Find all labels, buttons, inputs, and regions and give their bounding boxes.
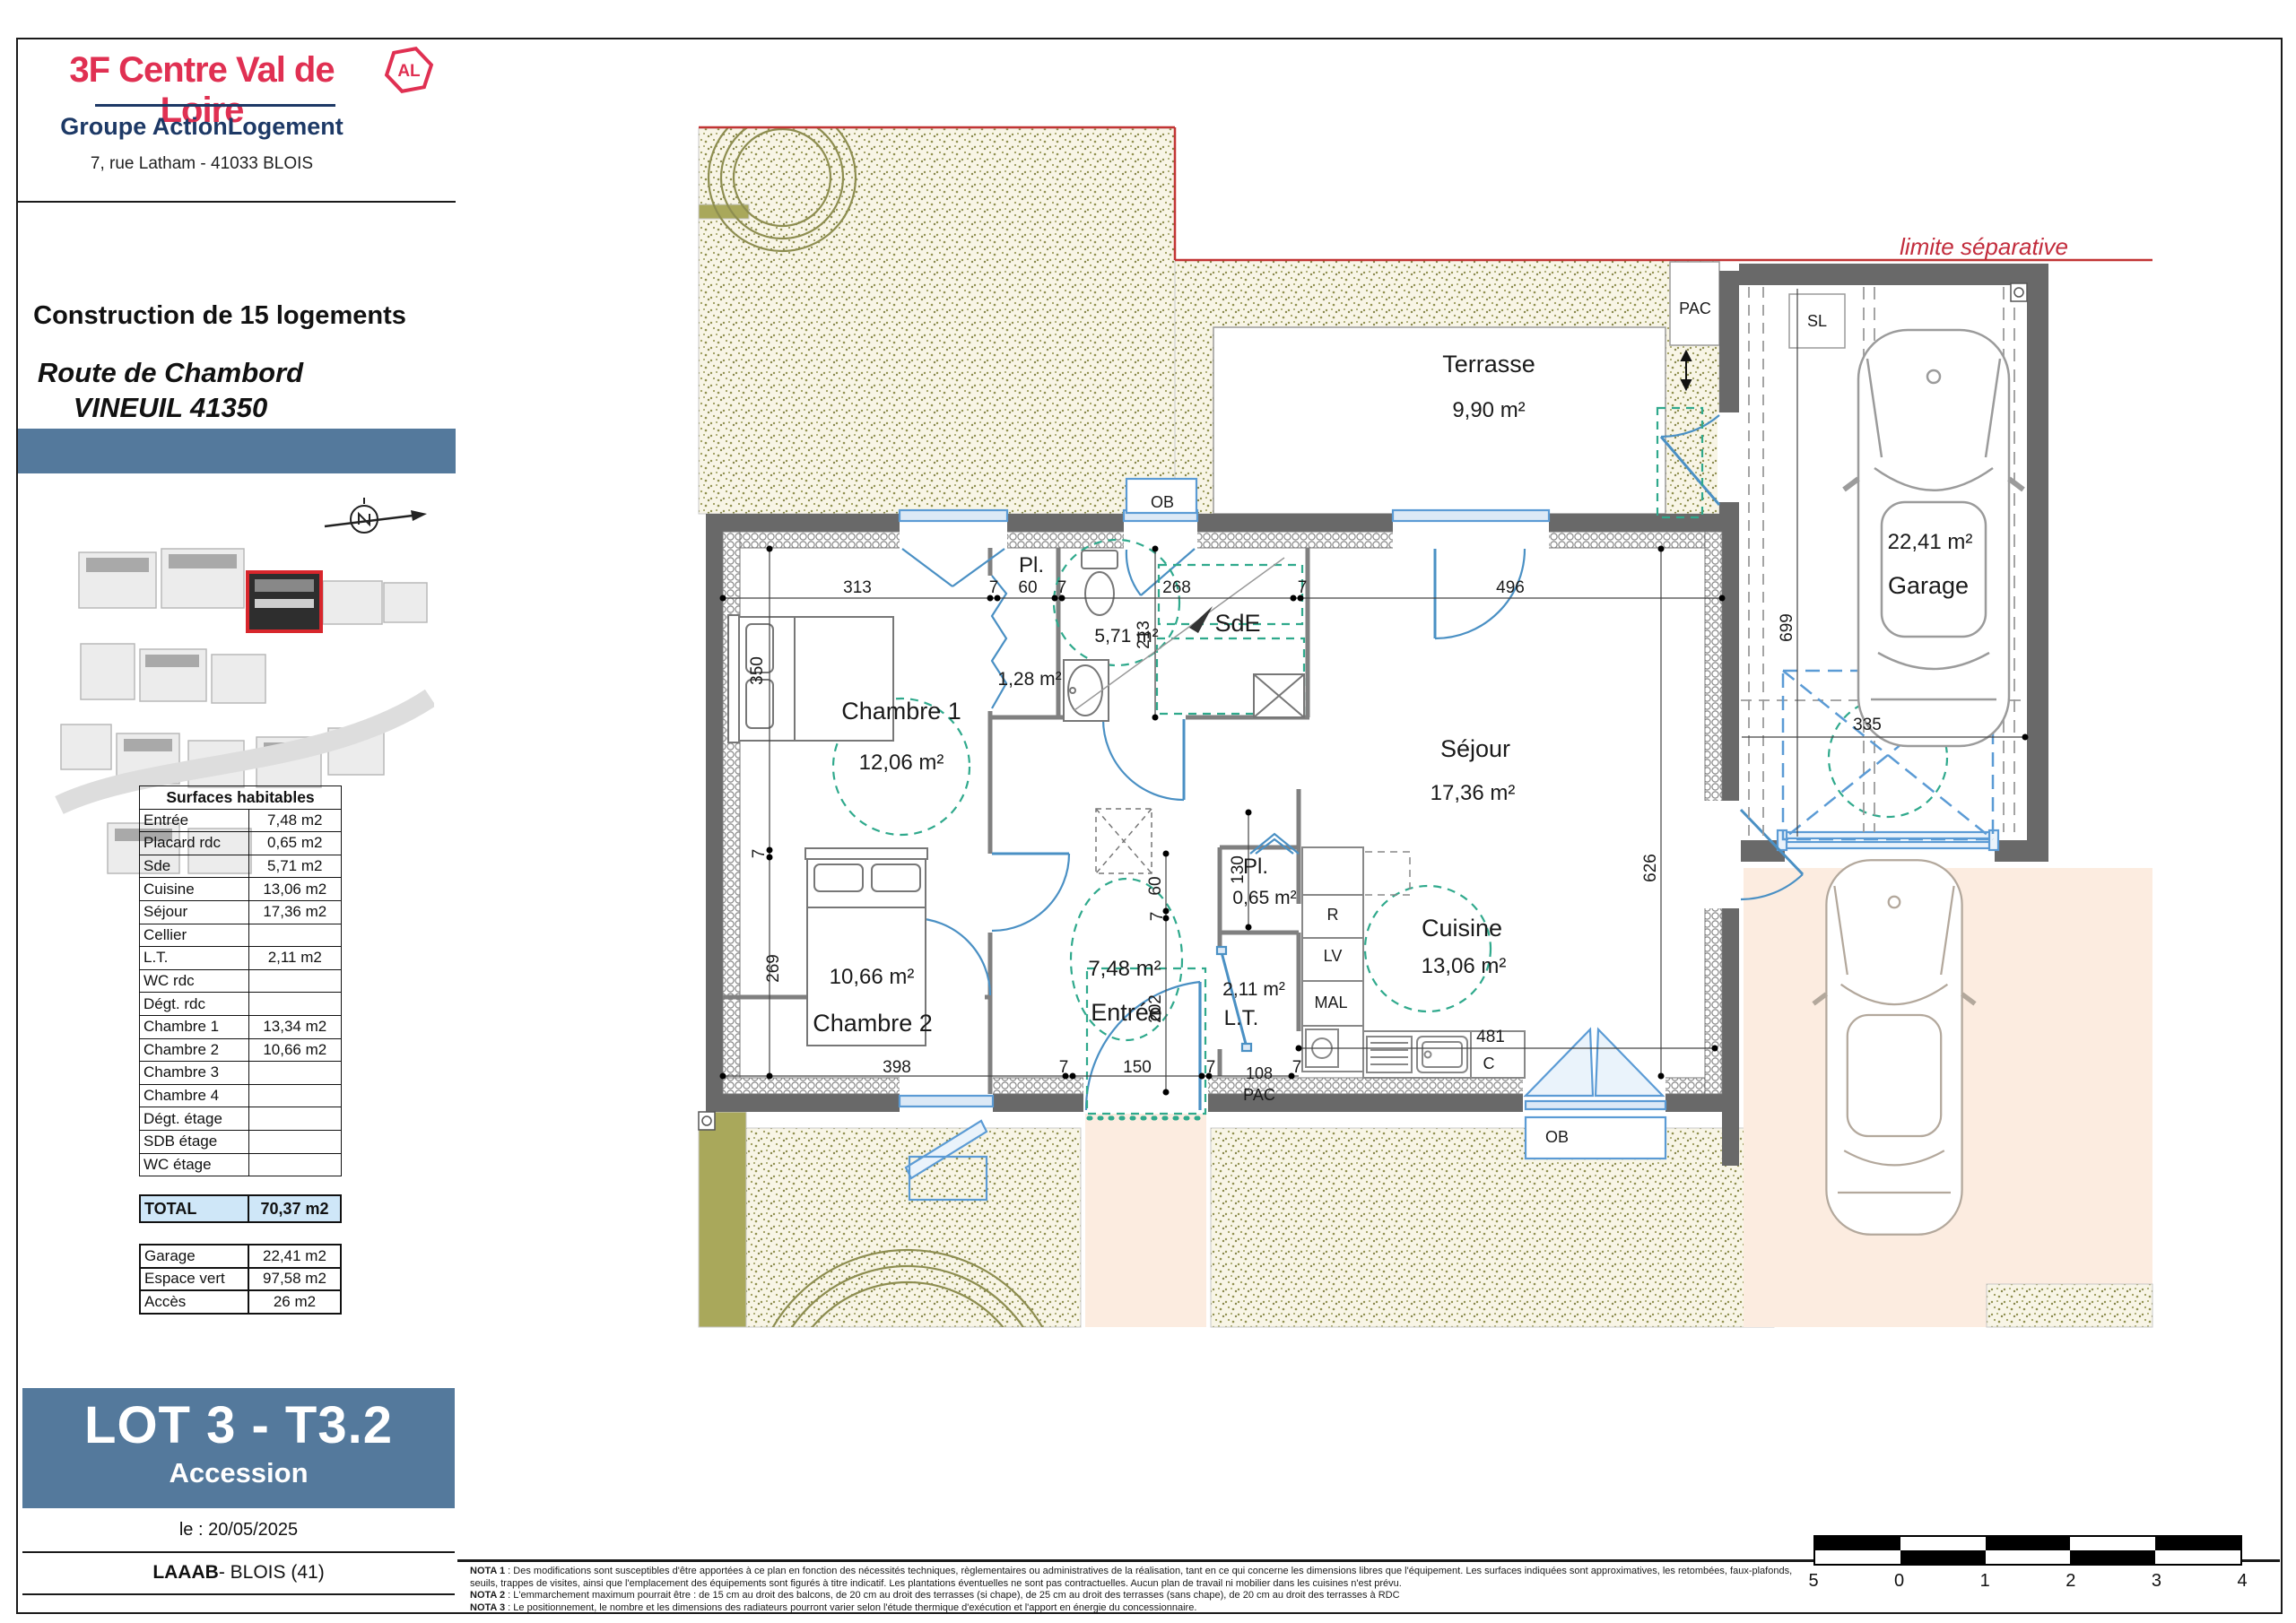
surface-label: SDB étage bbox=[140, 1130, 249, 1153]
surface-value: 17,36 m2 bbox=[248, 900, 341, 924]
area-chambre1: 12,06 m² bbox=[859, 751, 944, 775]
lot-title: LOT 3 - T3.2 bbox=[22, 1395, 455, 1455]
scale-tick: 4 bbox=[2237, 1571, 2247, 1592]
limite-separative-label: limite séparative bbox=[1900, 233, 2068, 260]
terrasse-area bbox=[1213, 327, 1665, 514]
surface-row: Chambre 1 13,34 m2 bbox=[140, 1015, 342, 1038]
room-chambre1: Chambre 1 bbox=[841, 698, 961, 725]
plan-dimension: 7 bbox=[1298, 578, 1308, 597]
surface-label: Dégt. étage bbox=[140, 1107, 249, 1131]
plan-dimension: 481 bbox=[1476, 1028, 1505, 1046]
annex-label: Garage bbox=[140, 1245, 248, 1268]
surface-value: 10,66 m2 bbox=[248, 1038, 341, 1062]
room-chambre2: Chambre 2 bbox=[813, 1010, 933, 1037]
plan-dimension: 7 bbox=[1206, 1058, 1216, 1077]
plan-dimension: 60 bbox=[1146, 876, 1165, 895]
plan-dimension: 150 bbox=[1123, 1058, 1152, 1077]
action-logement-hexagon-icon: AL bbox=[384, 45, 434, 95]
surface-row: Sde 5,71 m2 bbox=[140, 855, 342, 878]
nota-tag: NOTA 2 bbox=[470, 1590, 505, 1601]
area-lt: 2,11 m² bbox=[1222, 979, 1285, 1000]
surface-label: Chambre 1 bbox=[140, 1015, 249, 1038]
area-placard2: 0,65 m² bbox=[1232, 888, 1296, 908]
tag-pac-lt: PAC bbox=[1243, 1086, 1275, 1104]
nota-line: NOTA 3 : Le positionnement, le nombre et… bbox=[470, 1602, 1797, 1615]
annex-value: 26 m2 bbox=[248, 1290, 341, 1314]
room-sde: SdE bbox=[1214, 610, 1260, 637]
plan-dimension: 7 bbox=[1059, 1058, 1069, 1077]
nota-text: : L'emmarchement maximum pourrait être :… bbox=[505, 1590, 1399, 1601]
surface-value bbox=[248, 1153, 341, 1176]
tag-ob-top: OB bbox=[1151, 493, 1174, 511]
annex-label: Accès bbox=[140, 1290, 248, 1314]
annex-value: 97,58 m2 bbox=[248, 1268, 341, 1291]
room-sejour: Séjour bbox=[1440, 735, 1510, 762]
brand-underline bbox=[95, 104, 335, 107]
surface-label: Entrée bbox=[140, 809, 249, 832]
surface-row: Dégt. rdc bbox=[140, 993, 342, 1016]
scale-bar-ticks: 012345 bbox=[1813, 1571, 2242, 1596]
agency-row: LAAAB - BLOIS (41) bbox=[22, 1551, 455, 1595]
project-city: VINEUIL 41350 bbox=[18, 392, 323, 424]
surface-value: 0,65 m2 bbox=[248, 832, 341, 855]
tag-lv: LV bbox=[1324, 947, 1343, 965]
hedge-strip bbox=[1987, 1284, 2152, 1327]
total-label: TOTAL bbox=[140, 1195, 248, 1222]
plan-dimension: 202 bbox=[1146, 994, 1165, 1023]
floor-plan: limite séparativeTerrasse9,90 m²PACSLOBP… bbox=[691, 117, 2161, 1408]
nota-text: : Des modifications sont susceptibles d'… bbox=[470, 1566, 1792, 1589]
plan-dimension: 7 bbox=[1057, 578, 1067, 597]
surface-label: Chambre 4 bbox=[140, 1084, 249, 1107]
total-table: TOTAL 70,37 m2 bbox=[139, 1194, 342, 1223]
annex-table: Garage 22,41 m2 Espace vert 97,58 m2 Acc… bbox=[139, 1244, 342, 1315]
surface-value bbox=[248, 924, 341, 947]
tag-sl: SL bbox=[1807, 312, 1827, 330]
tag-r: R bbox=[1327, 906, 1339, 924]
nota-text: : Le positionnement, le nombre et les di… bbox=[505, 1602, 1196, 1613]
plan-dimension: 130 bbox=[1229, 855, 1248, 884]
surface-value bbox=[248, 993, 341, 1016]
annex-row: Accès 26 m2 bbox=[140, 1290, 341, 1314]
plan-dimension: 213 bbox=[1135, 621, 1153, 649]
room-terrasse: Terrasse bbox=[1442, 351, 1535, 378]
tag-c: C bbox=[1483, 1055, 1495, 1072]
site-plan-highlighted-lot bbox=[248, 572, 321, 631]
surface-value bbox=[248, 1062, 341, 1085]
surfaces-table: Surfaces habitables Entrée 7,48 m2 Placa… bbox=[139, 785, 342, 1176]
plan-dimension: 335 bbox=[1853, 716, 1882, 734]
surface-row: SDB étage bbox=[140, 1130, 342, 1153]
surface-row: L.T. 2,11 m2 bbox=[140, 947, 342, 970]
scale-tick: 1 bbox=[1980, 1571, 1990, 1592]
surfaces-header: Surfaces habitables bbox=[140, 786, 342, 810]
scale-tick: 3 bbox=[2152, 1571, 2161, 1592]
plan-sheet: 3F Centre Val de Loire AL Groupe ActionL… bbox=[0, 0, 2296, 1623]
surface-row: WC étage bbox=[140, 1153, 342, 1176]
surface-label: Placard rdc bbox=[140, 832, 249, 855]
tag-ob-bottom: OB bbox=[1545, 1128, 1569, 1146]
surface-label: Dégt. rdc bbox=[140, 993, 249, 1016]
surface-value: 7,48 m2 bbox=[248, 809, 341, 832]
plan-dimension: 7 bbox=[750, 849, 769, 859]
surface-value: 13,06 m2 bbox=[248, 878, 341, 901]
surface-label: L.T. bbox=[140, 947, 249, 970]
room-cuisine: Cuisine bbox=[1422, 915, 1502, 942]
scale-tick: 2 bbox=[2066, 1571, 2075, 1592]
area-entree: 7,48 m² bbox=[1088, 957, 1161, 981]
annex-row: Espace vert 97,58 m2 bbox=[140, 1268, 341, 1291]
date-row: le : 20/05/2025 bbox=[22, 1508, 455, 1553]
surface-row: Séjour 17,36 m2 bbox=[140, 900, 342, 924]
agency-name: LAAAB bbox=[152, 1562, 219, 1584]
scale-bar: 012345 bbox=[1813, 1535, 2242, 1598]
surface-value bbox=[248, 969, 341, 993]
total-value: 70,37 m2 bbox=[248, 1195, 341, 1222]
surface-row: Chambre 3 bbox=[140, 1062, 342, 1085]
surface-value: 2,11 m2 bbox=[248, 947, 341, 970]
plan-dimension: 313 bbox=[843, 578, 872, 597]
plan-dimension: 7 bbox=[989, 578, 999, 597]
surface-row: Chambre 4 bbox=[140, 1084, 342, 1107]
agency-location: - BLOIS (41) bbox=[219, 1562, 325, 1584]
surface-value bbox=[248, 1130, 341, 1153]
surface-row: Entrée 7,48 m2 bbox=[140, 809, 342, 832]
lot-subtitle: Accession bbox=[22, 1457, 455, 1489]
plan-dimension: 269 bbox=[764, 954, 783, 983]
surface-label: WC rdc bbox=[140, 969, 249, 993]
area-chambre2: 10,66 m² bbox=[830, 965, 915, 989]
surface-label: WC étage bbox=[140, 1153, 249, 1176]
brand-address: 7, rue Latham - 41033 BLOIS bbox=[27, 154, 377, 174]
surface-label: Cuisine bbox=[140, 878, 249, 901]
lot-banner: LOT 3 - T3.2 Accession bbox=[22, 1388, 455, 1508]
plan-dimension: 268 bbox=[1162, 578, 1191, 597]
scale-tick: 5 bbox=[1808, 1571, 1818, 1592]
svg-text:AL: AL bbox=[397, 62, 421, 81]
tag-108: 108 bbox=[1246, 1064, 1273, 1082]
surface-label: Chambre 3 bbox=[140, 1062, 249, 1085]
brand-group: Groupe ActionLogement bbox=[27, 113, 377, 141]
surface-label: Chambre 2 bbox=[140, 1038, 249, 1062]
plan-dimension: 7 bbox=[1292, 1058, 1302, 1077]
nota-line: NOTA 1 : Des modifications sont suscepti… bbox=[470, 1566, 1797, 1590]
surface-label: Sde bbox=[140, 855, 249, 878]
scale-tick: 0 bbox=[1894, 1571, 1904, 1592]
sidebar-blue-banner bbox=[18, 429, 456, 473]
plan-dimension: 626 bbox=[1641, 854, 1660, 882]
nota-tag: NOTA 3 bbox=[470, 1602, 505, 1613]
surface-label: Cellier bbox=[140, 924, 249, 947]
tag-pac: PAC bbox=[1679, 299, 1711, 317]
surface-row: Chambre 2 10,66 m2 bbox=[140, 1038, 342, 1062]
tag-mal: MAL bbox=[1314, 994, 1347, 1011]
plan-dimension: 496 bbox=[1496, 578, 1525, 597]
area-sejour: 17,36 m² bbox=[1431, 781, 1516, 805]
surface-value: 5,71 m2 bbox=[248, 855, 341, 878]
area-placard: 1,28 m² bbox=[997, 669, 1061, 690]
room-lt: L.T. bbox=[1224, 1006, 1259, 1030]
surface-row: Cuisine 13,06 m2 bbox=[140, 878, 342, 901]
room-placard: Pl. bbox=[1019, 553, 1044, 577]
project-street: Route de Chambord bbox=[18, 357, 323, 389]
plan-dimension: 350 bbox=[748, 656, 767, 685]
room-garage: Garage bbox=[1888, 572, 1969, 599]
scale-bar-segments bbox=[1813, 1535, 2242, 1566]
annex-value: 22,41 m2 bbox=[248, 1245, 341, 1268]
access-path bbox=[1085, 1112, 1206, 1327]
nota-line: NOTA 2 : L'emmarchement maximum pourrait… bbox=[470, 1590, 1797, 1602]
plan-dimension: 7 bbox=[1148, 912, 1167, 922]
surface-value bbox=[248, 1107, 341, 1131]
area-cuisine: 13,06 m² bbox=[1422, 954, 1507, 978]
plan-dimension: 699 bbox=[1778, 613, 1796, 642]
surface-row: Placard rdc 0,65 m2 bbox=[140, 832, 342, 855]
car-driveway bbox=[1813, 860, 1975, 1235]
surface-row: Dégt. étage bbox=[140, 1107, 342, 1131]
surface-value: 13,34 m2 bbox=[248, 1015, 341, 1038]
annex-row: Garage 22,41 m2 bbox=[140, 1245, 341, 1268]
surface-row: Cellier bbox=[140, 924, 342, 947]
area-terrasse: 9,90 m² bbox=[1452, 398, 1525, 422]
surface-row: WC rdc bbox=[140, 969, 342, 993]
sidebar-divider bbox=[18, 201, 456, 203]
area-garage: 22,41 m² bbox=[1888, 530, 1973, 554]
surface-label: Séjour bbox=[140, 900, 249, 924]
plan-dimension: 60 bbox=[1018, 578, 1037, 597]
nota-block: NOTA 1 : Des modifications sont suscepti… bbox=[470, 1566, 1797, 1614]
surface-value bbox=[248, 1084, 341, 1107]
nota-tag: NOTA 1 bbox=[470, 1566, 505, 1576]
plan-dimension: 398 bbox=[883, 1058, 911, 1077]
project-title: Construction de 15 logements bbox=[22, 301, 417, 331]
annex-label: Espace vert bbox=[140, 1268, 248, 1291]
